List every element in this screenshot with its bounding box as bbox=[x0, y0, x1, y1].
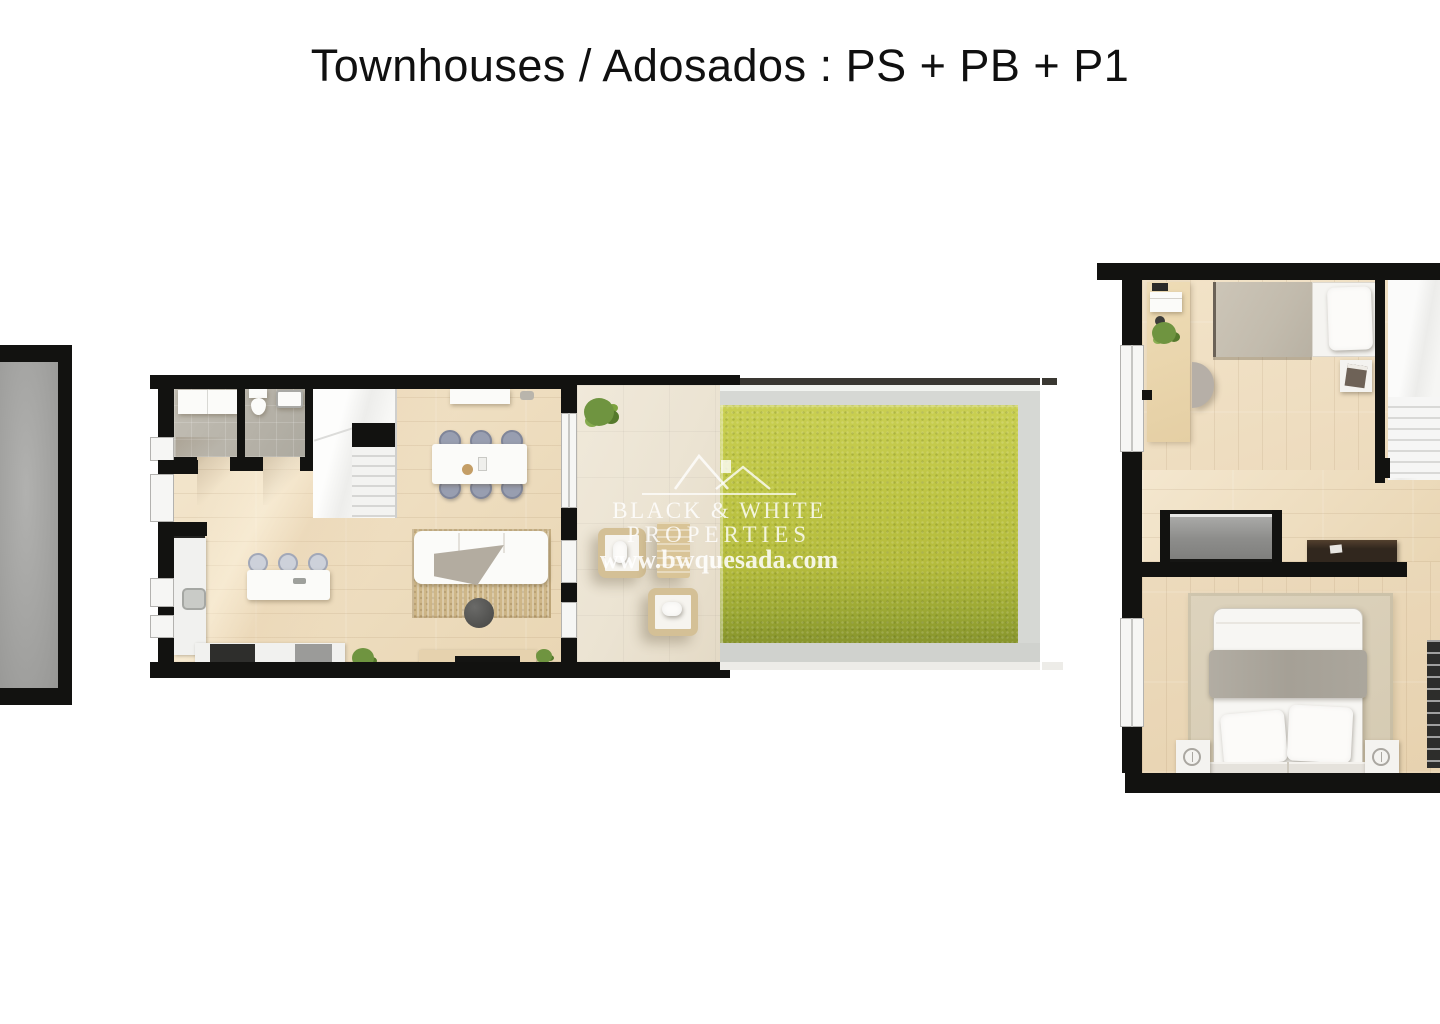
desk-plant bbox=[1152, 322, 1176, 344]
page-title: Townhouses / Adosados : PS + PB + P1 bbox=[0, 40, 1440, 92]
magazine bbox=[1345, 364, 1368, 389]
oven bbox=[295, 644, 332, 662]
glass-window bbox=[561, 602, 577, 638]
single-bed-pillow bbox=[1327, 286, 1373, 350]
terrace-wall bbox=[561, 638, 577, 662]
wardrobe-post bbox=[1272, 510, 1282, 563]
glass-door-frame bbox=[568, 413, 570, 508]
first-wall-left bbox=[1122, 452, 1142, 618]
coffee-table bbox=[464, 598, 494, 628]
first-wall-top bbox=[1097, 263, 1440, 280]
door-shadow bbox=[263, 457, 303, 505]
stair-treads bbox=[1388, 397, 1440, 478]
window bbox=[150, 615, 174, 638]
toilet-tank bbox=[249, 389, 267, 398]
garden-lawn bbox=[720, 405, 1018, 643]
outdoor-side-table bbox=[657, 522, 690, 578]
nightstand-lamp bbox=[1372, 748, 1390, 766]
outdoor-armchair bbox=[648, 588, 698, 636]
basement-wall-right bbox=[58, 345, 72, 705]
potted-plant bbox=[536, 649, 552, 663]
nightstand-lamp bbox=[1183, 748, 1201, 766]
garden-wall-top bbox=[740, 378, 1057, 385]
floor-plan-sheet: Townhouses / Adosados : PS + PB + P1 bbox=[0, 0, 1440, 1024]
table-bowl bbox=[462, 464, 473, 475]
bed-throw-blanket bbox=[1209, 650, 1367, 698]
terrace-wall bbox=[561, 375, 577, 413]
window bbox=[150, 578, 174, 607]
basement-wall-bottom bbox=[0, 688, 72, 705]
lawn-border-right bbox=[1018, 391, 1040, 662]
island-faucet bbox=[293, 578, 306, 584]
lawn-border-top bbox=[720, 391, 1040, 405]
terrace-wall bbox=[561, 508, 577, 540]
book-seam bbox=[1150, 298, 1182, 299]
stair-divider-wall bbox=[1375, 280, 1385, 483]
gravel-strip bbox=[1040, 378, 1063, 670]
single-bed-blanket bbox=[1213, 282, 1312, 357]
book-stack bbox=[1150, 292, 1182, 312]
kitchen-island bbox=[247, 570, 330, 600]
armchair-cushion bbox=[662, 602, 682, 616]
ground-wall-left bbox=[158, 389, 174, 437]
desk-paper bbox=[1330, 544, 1343, 553]
glass-window bbox=[561, 540, 577, 583]
armchair-cushion bbox=[613, 541, 627, 563]
bathroom-wall bbox=[230, 457, 263, 471]
outdoor-armchair bbox=[598, 528, 646, 578]
duvet-fold bbox=[1216, 622, 1360, 624]
basement-room-floor bbox=[0, 362, 58, 688]
bed-pillow bbox=[1287, 704, 1354, 763]
first-wall-left bbox=[1122, 727, 1142, 773]
sideboard bbox=[450, 389, 510, 404]
cabinet-door-seam bbox=[207, 390, 208, 414]
window bbox=[150, 474, 174, 522]
wall-stub bbox=[174, 522, 207, 536]
ground-wall-left bbox=[158, 607, 174, 615]
bathroom-wall bbox=[174, 457, 197, 471]
stair-treads bbox=[352, 447, 395, 517]
dark-desk bbox=[1307, 540, 1397, 562]
sideboard-decor bbox=[520, 391, 534, 400]
nightstand bbox=[1176, 740, 1210, 775]
nightstand bbox=[1365, 740, 1399, 775]
first-wall-left bbox=[1122, 280, 1142, 345]
cooktop bbox=[210, 644, 255, 662]
terrace-wall bbox=[561, 583, 577, 602]
ground-wall-bottom bbox=[150, 662, 730, 678]
first-wall-bottom bbox=[1125, 773, 1440, 793]
wardrobe-post bbox=[1160, 510, 1170, 563]
kitchen-sink bbox=[182, 588, 206, 610]
window-frame bbox=[1131, 345, 1133, 452]
window-frame bbox=[1131, 618, 1133, 727]
terrace-plant bbox=[584, 398, 614, 426]
bathroom-sink bbox=[276, 390, 303, 408]
window-shutter bbox=[1427, 640, 1440, 768]
bed-pillow bbox=[1220, 709, 1288, 766]
ground-wall-left bbox=[158, 638, 174, 662]
sofa-seam bbox=[503, 533, 505, 553]
bathroom-wall bbox=[300, 457, 313, 471]
wardrobe bbox=[1160, 510, 1282, 563]
lawn-border-bottom bbox=[720, 643, 1040, 662]
stair-void bbox=[352, 423, 397, 447]
table-decor bbox=[478, 457, 487, 471]
wall-tick bbox=[1142, 390, 1152, 400]
terrace-curb bbox=[720, 662, 1063, 670]
desk-lamp bbox=[1152, 283, 1168, 291]
ground-wall-left bbox=[158, 522, 174, 578]
bedroom-divider-wall bbox=[1142, 562, 1407, 577]
window bbox=[150, 437, 174, 461]
stair-edge bbox=[395, 389, 397, 518]
sofa-seam bbox=[458, 533, 460, 553]
